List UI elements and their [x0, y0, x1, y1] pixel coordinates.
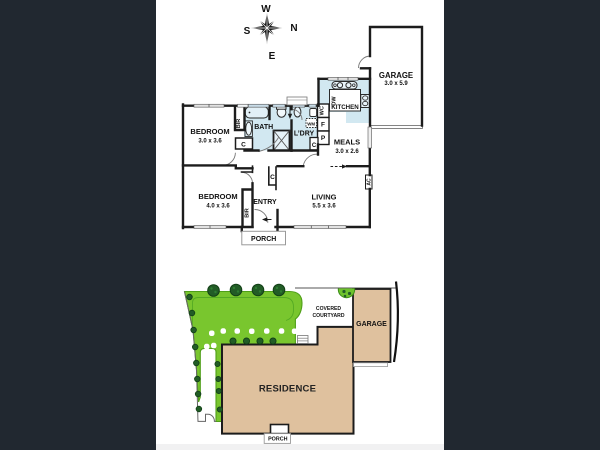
svg-text:P: P [321, 135, 326, 142]
svg-text:C: C [270, 174, 275, 181]
svg-text:W: W [261, 4, 271, 15]
svg-text:BIR: BIR [245, 208, 251, 218]
svg-text:LIVING: LIVING [311, 192, 336, 201]
svg-text:WM: WM [307, 121, 315, 126]
svg-text:AC: AC [366, 178, 372, 186]
svg-text:GARAGE: GARAGE [356, 321, 387, 328]
svg-text:PORCH: PORCH [251, 236, 276, 243]
svg-text:ENTRY: ENTRY [253, 199, 277, 206]
svg-text:C: C [241, 142, 246, 149]
svg-text:5.5 x 3.6: 5.5 x 3.6 [312, 204, 336, 210]
svg-text:COVERED: COVERED [316, 306, 342, 312]
svg-text:BIR: BIR [236, 119, 242, 129]
svg-text:3.0 x 5.9: 3.0 x 5.9 [384, 81, 408, 87]
svg-text:BATH: BATH [254, 124, 273, 131]
svg-text:COURTYARD: COURTYARD [312, 313, 344, 319]
svg-text:WC: WC [320, 106, 326, 115]
svg-text:4.0 x 3.6: 4.0 x 3.6 [206, 204, 230, 210]
svg-text:N: N [290, 23, 297, 34]
svg-text:PORCH: PORCH [268, 437, 288, 443]
svg-text:C: C [312, 143, 317, 149]
svg-text:F: F [321, 122, 325, 129]
svg-text:L’DRY: L’DRY [294, 131, 315, 138]
svg-text:3.0 x 3.6: 3.0 x 3.6 [198, 139, 222, 145]
svg-text:S: S [244, 26, 251, 37]
svg-text:3.0 x 2.6: 3.0 x 2.6 [335, 149, 359, 155]
svg-text:BEDROOM: BEDROOM [198, 192, 237, 201]
svg-text:KITCHEN: KITCHEN [331, 104, 359, 111]
svg-text:GARAGE: GARAGE [379, 71, 413, 80]
svg-text:MEALS: MEALS [334, 138, 360, 147]
svg-text:RESIDENCE: RESIDENCE [259, 384, 316, 395]
svg-text:BEDROOM: BEDROOM [190, 127, 229, 136]
svg-text:E: E [269, 51, 276, 62]
